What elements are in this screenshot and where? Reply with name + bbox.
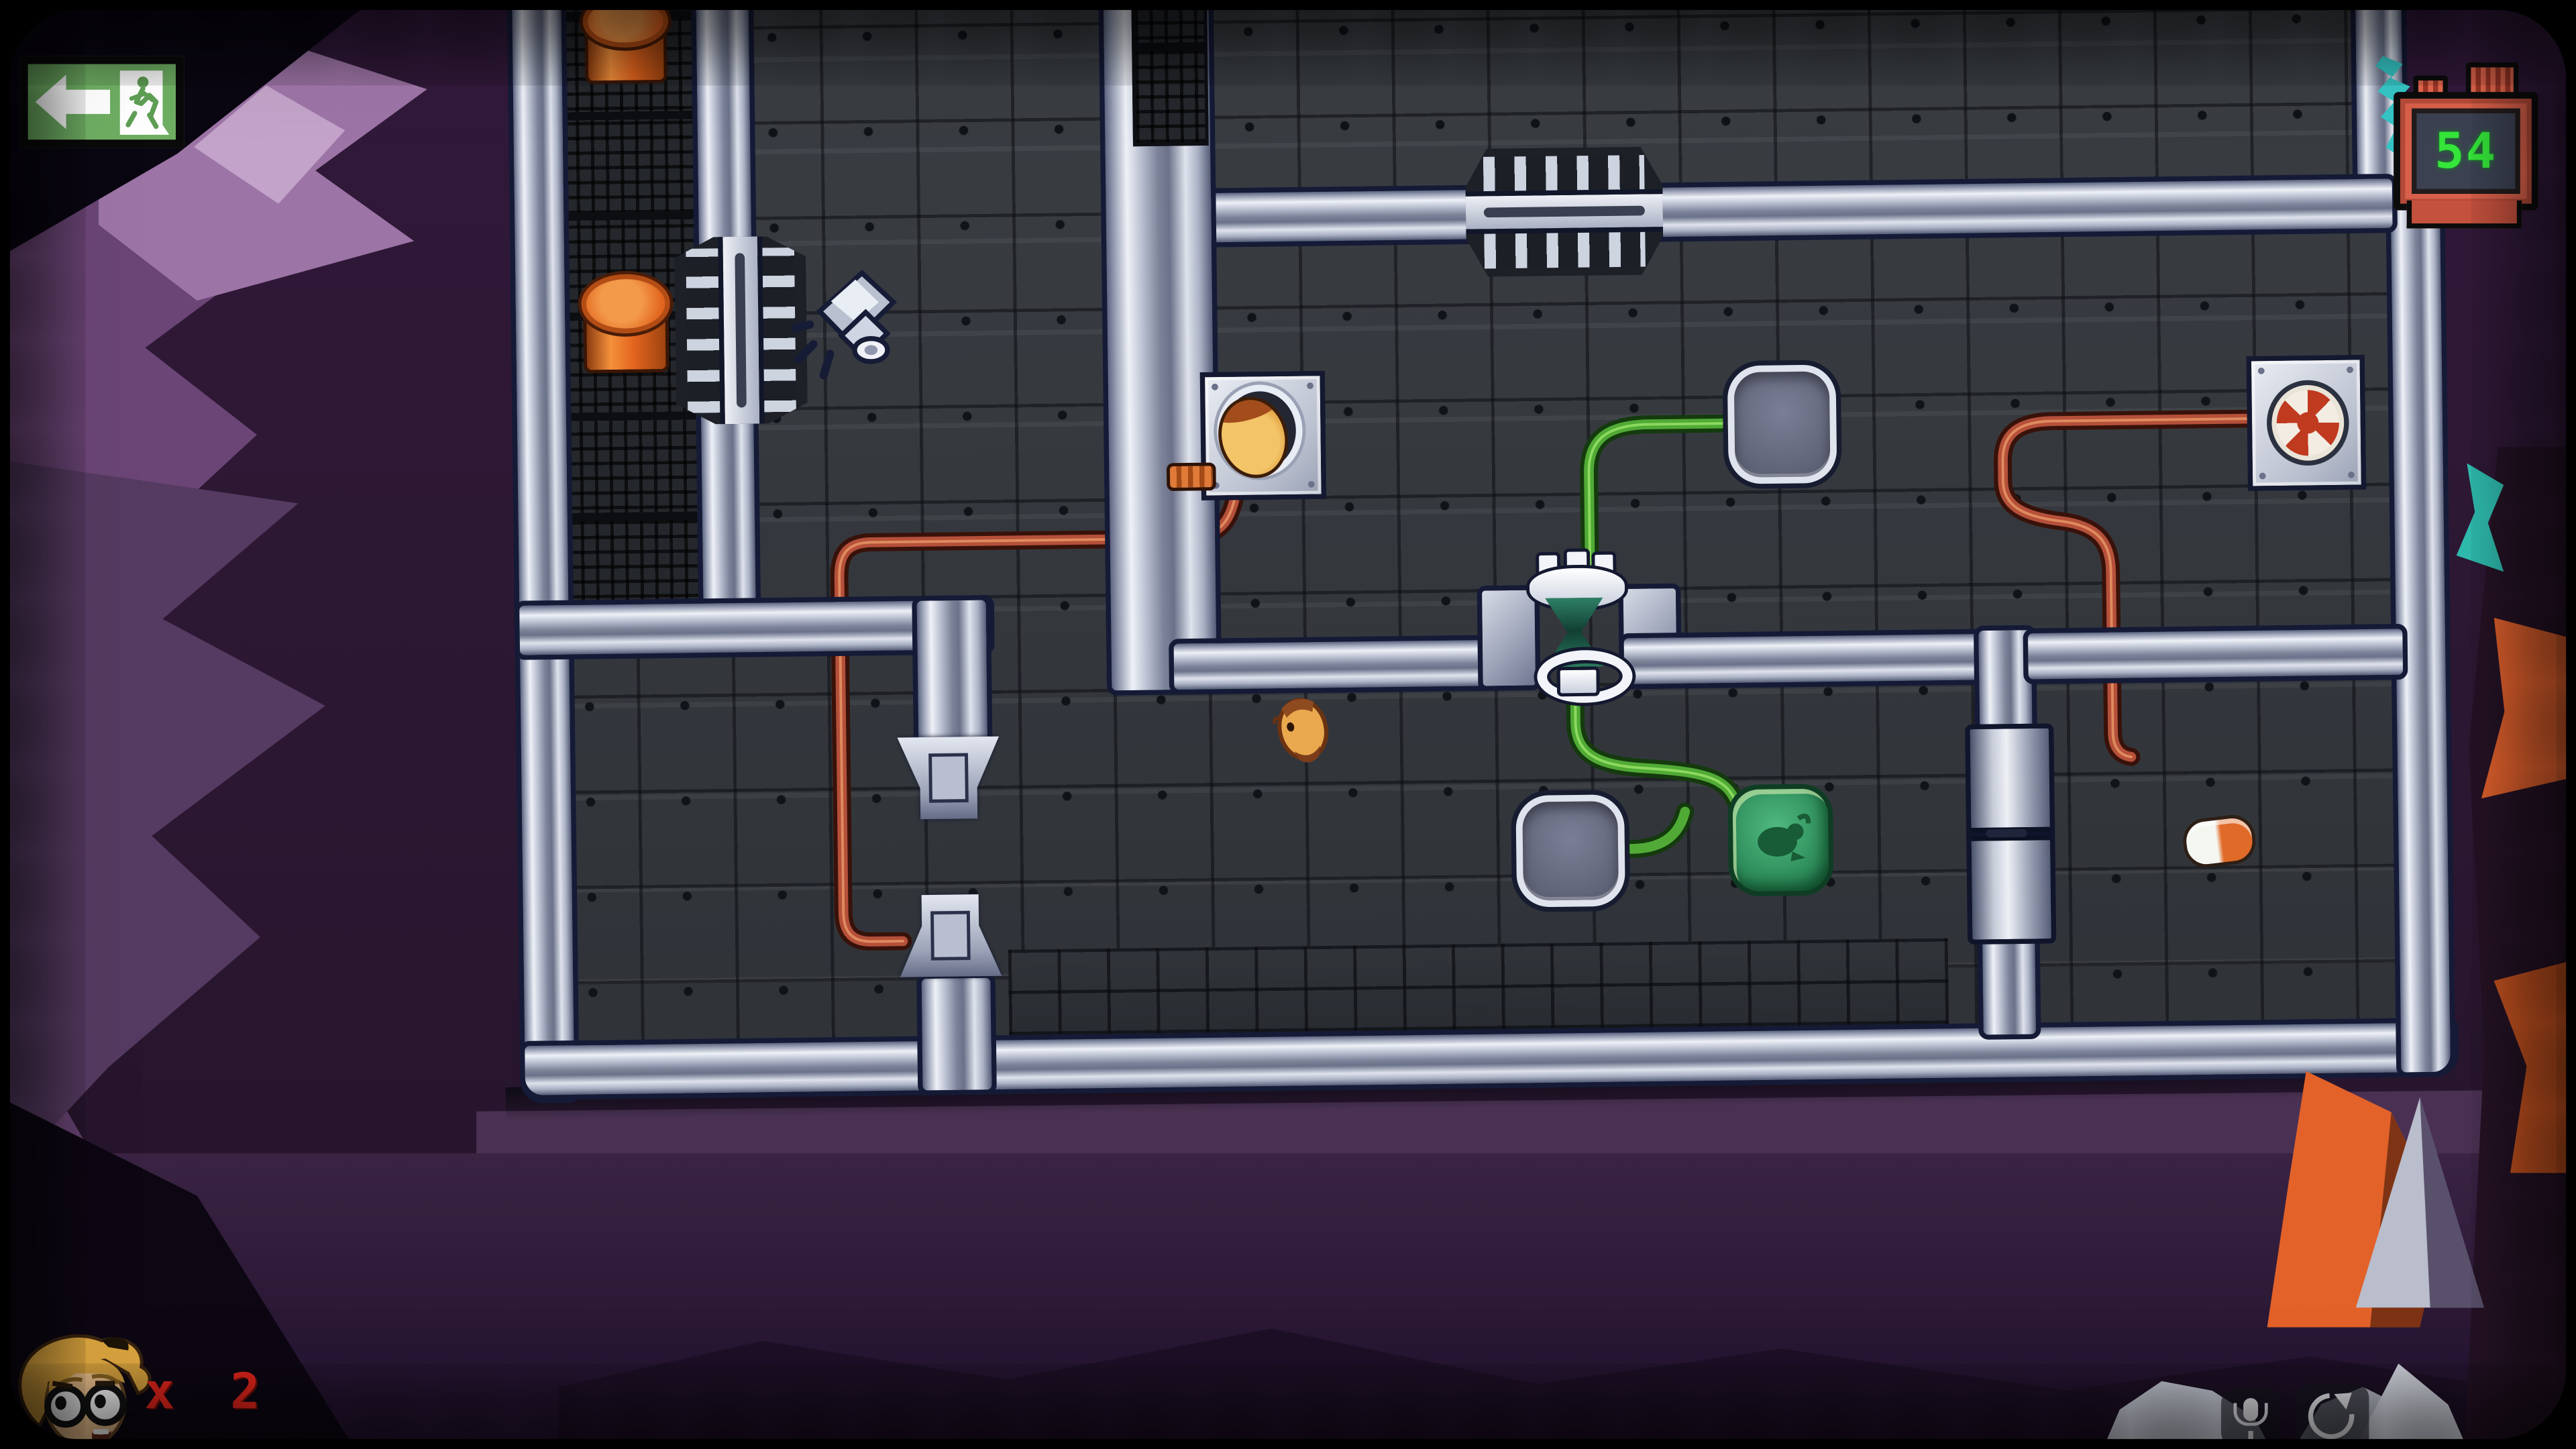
lives-indicator: x 2 — [7, 1328, 434, 1449]
goo-hamster-icon — [1732, 788, 1829, 892]
hourglass-valve — [1519, 548, 1629, 694]
microphone-button[interactable] — [2221, 1388, 2280, 1447]
wall-mid-left — [1169, 635, 1501, 694]
hamster-wall-port — [1200, 371, 1326, 500]
target-panel — [2247, 355, 2367, 491]
lives-count: x 2 — [145, 1364, 273, 1421]
red-wire-right — [2002, 419, 2255, 759]
counter-base — [2407, 201, 2522, 229]
game-screen: 54 x 2 — [0, 0, 2576, 1449]
counter-display: 54 — [2394, 62, 2532, 227]
wall-piston-upper — [912, 595, 992, 751]
player-portrait — [7, 1328, 164, 1449]
counter-body: 54 — [2394, 92, 2538, 210]
wire-conduit-stub — [1167, 462, 1216, 491]
wall-rightroom-top — [2023, 624, 2408, 684]
counter-value: 54 — [2434, 122, 2497, 180]
exit-button[interactable] — [19, 56, 184, 148]
goo-pad-hamster-symbol — [1732, 788, 1829, 892]
hamster-creature — [1267, 690, 1340, 769]
wall-piston-lower — [916, 973, 997, 1095]
facility-map — [0, 0, 2576, 1449]
orange-barrel-top — [584, 0, 667, 84]
security-camera — [790, 261, 903, 390]
pressure-plate-bottom — [1515, 794, 1625, 907]
exit-running-man-icon — [113, 68, 168, 138]
pressure-plate-top — [1727, 364, 1837, 484]
wall-mid-right — [1619, 629, 1994, 689]
orange-barrel-mid — [582, 270, 669, 373]
wall-vent-gate-top — [1465, 146, 1664, 277]
piston-wedge-top — [897, 737, 1000, 820]
rotate-button[interactable] — [2297, 1383, 2369, 1449]
mesh-grate-central — [1131, 0, 1209, 146]
wall-vent-gate-left — [674, 236, 808, 425]
counter-screen: 54 — [2412, 109, 2520, 194]
piston-wedge-bottom — [899, 894, 1002, 977]
wall-door-lower — [1978, 930, 2041, 1040]
left-arrow-icon — [34, 64, 111, 140]
sliding-door — [1965, 723, 2056, 945]
